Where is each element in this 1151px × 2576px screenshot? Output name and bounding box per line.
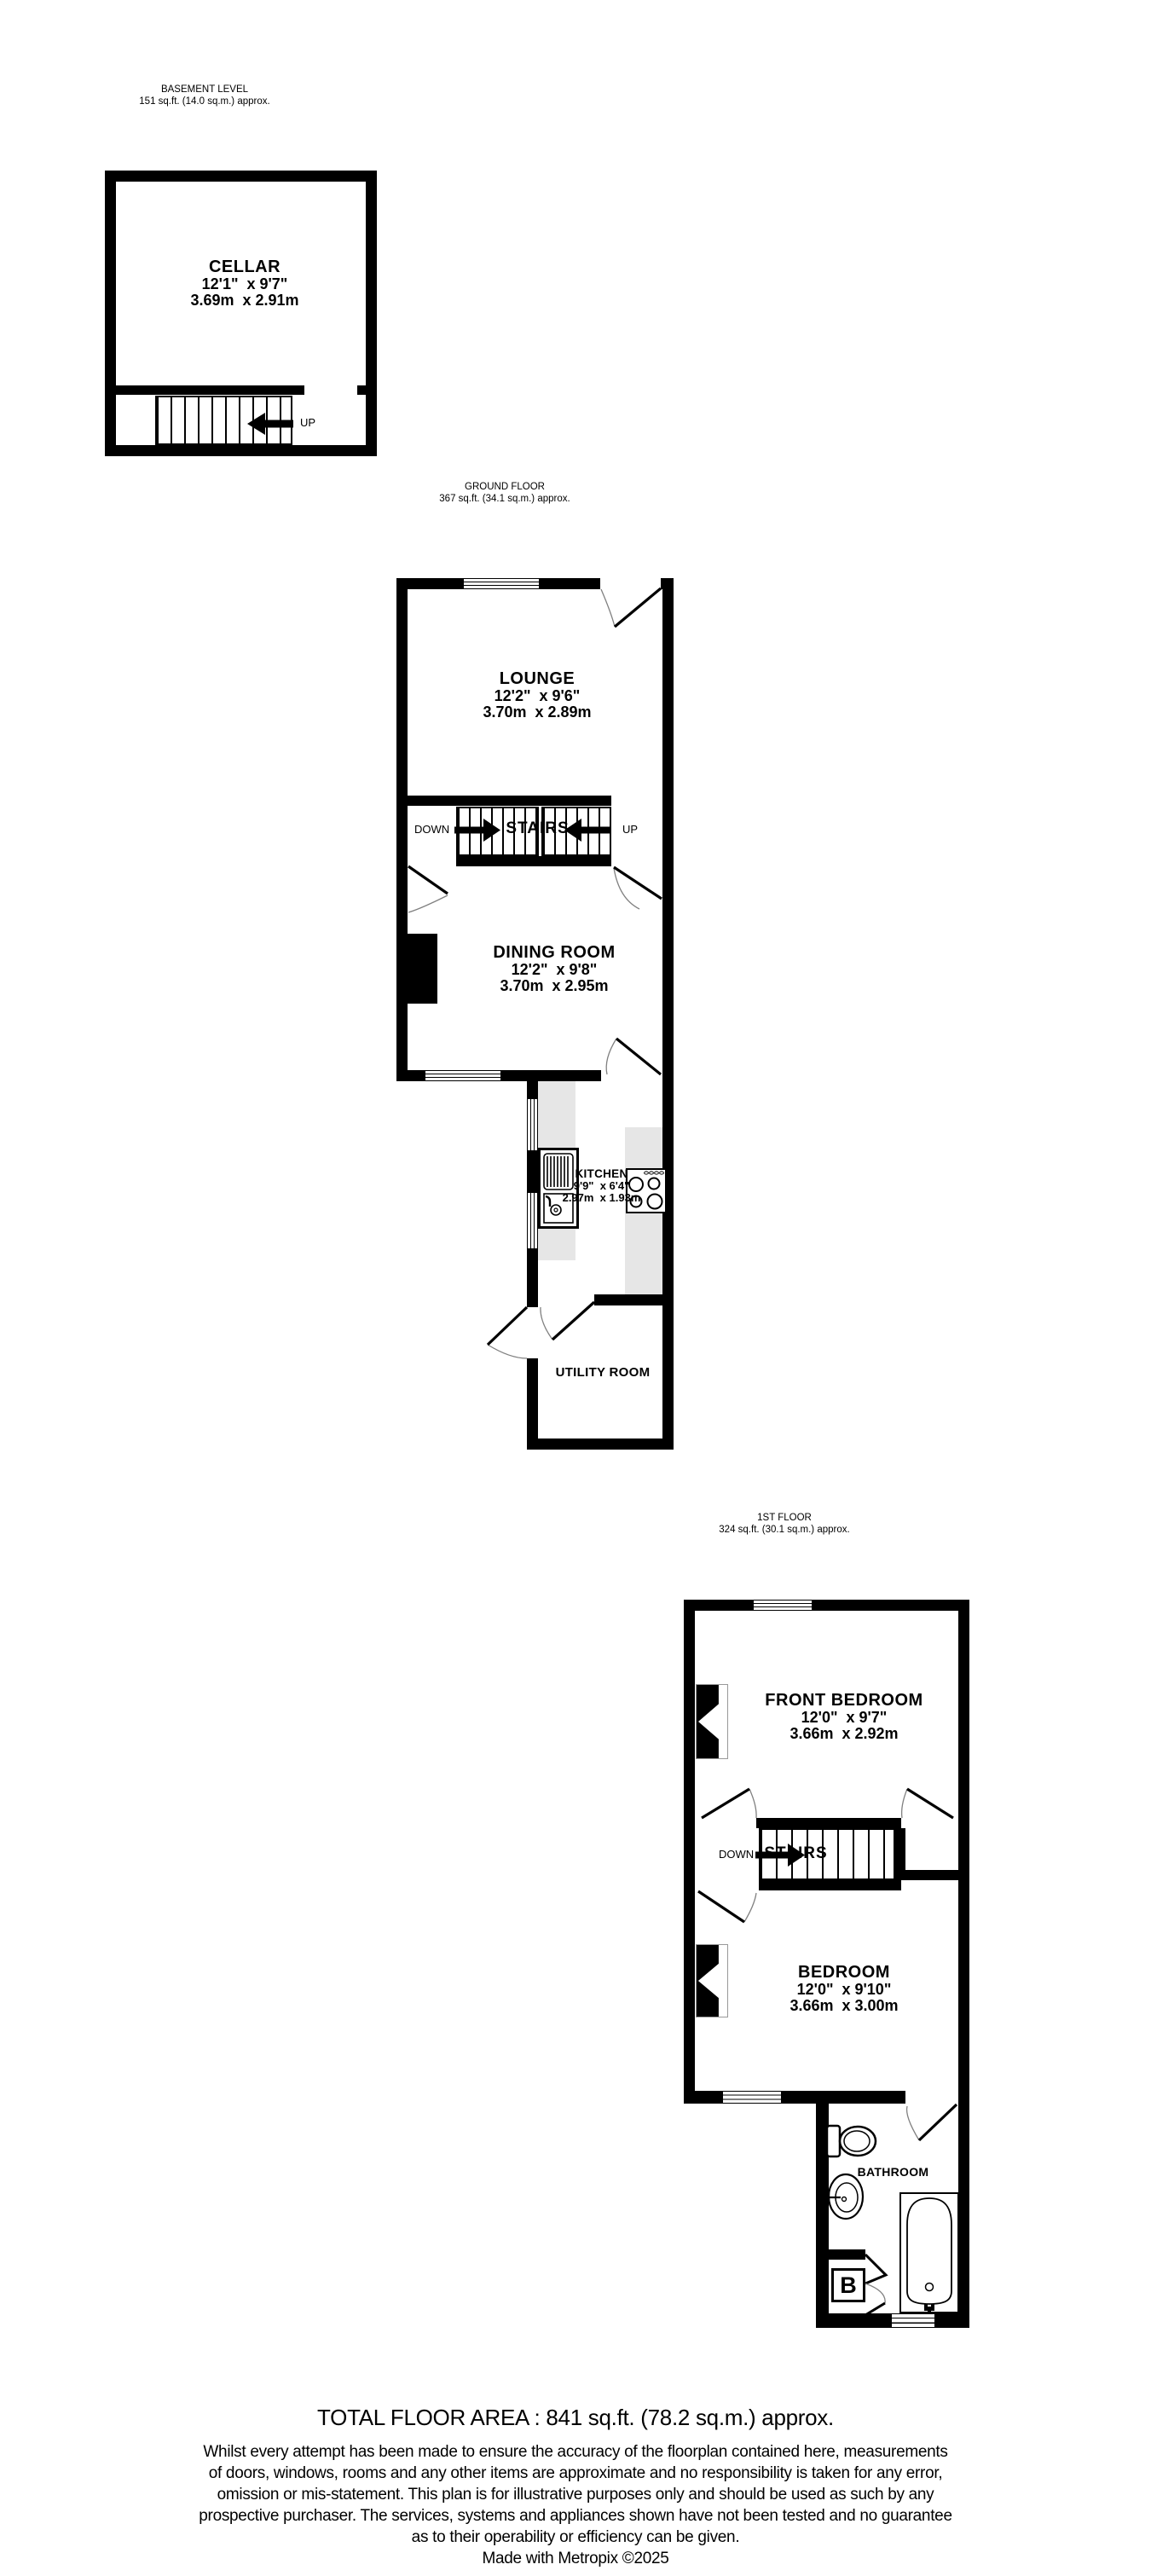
wall bbox=[456, 856, 611, 866]
room-label-front-bedroom: FRONT BEDROOM 12'0" x 9'7" 3.66m x 2.92m bbox=[759, 1692, 929, 1742]
wall bbox=[935, 2313, 969, 2328]
dining-metric: 3.70m x 2.95m bbox=[469, 978, 639, 994]
bathroom-door-swing bbox=[902, 2103, 960, 2144]
disclaimer-line: of doors, windows, rooms and any other i… bbox=[98, 2463, 1053, 2484]
chimney-breast bbox=[696, 1684, 728, 1759]
window bbox=[753, 1600, 813, 1611]
wall bbox=[366, 171, 377, 456]
disclaimer: Whilst every attempt has been made to en… bbox=[98, 2441, 1053, 2569]
room-label-dining: DINING ROOM 12'2" x 9'8" 3.70m x 2.95m bbox=[469, 944, 639, 994]
chimney-breast bbox=[696, 1944, 728, 2017]
floorplan-canvas: BASEMENT LEVEL 151 sq.ft. (14.0 sq.m.) a… bbox=[0, 0, 1151, 2576]
disclaimer-line: omission or mis-statement. This plan is … bbox=[98, 2484, 1053, 2505]
wall bbox=[408, 796, 611, 806]
ground-floor-area: 367 sq.ft. (34.1 sq.m.) approx. bbox=[377, 493, 633, 505]
room-label-kitchen: KITCHEN 9'9" x 6'4" 2.97m x 1.93m bbox=[535, 1167, 668, 1204]
window bbox=[527, 1098, 538, 1151]
room-label-bedroom: BEDROOM 12'0" x 9'10" 3.66m x 3.00m bbox=[759, 1964, 929, 2014]
room-label-bathroom: BATHROOM bbox=[840, 2166, 946, 2179]
exterior-door-swing bbox=[476, 1305, 530, 1362]
wall bbox=[539, 578, 600, 589]
wall bbox=[813, 1600, 969, 1611]
window bbox=[722, 2091, 782, 2104]
bathroom-name: BATHROOM bbox=[840, 2166, 946, 2179]
cellar-name: CELLAR bbox=[159, 258, 330, 276]
wall bbox=[782, 2091, 905, 2104]
ground-floor-title: GROUND FLOOR bbox=[377, 481, 633, 493]
lounge-imperial: 12'2" x 9'6" bbox=[452, 688, 622, 704]
wall bbox=[500, 1070, 601, 1081]
room-label-utility: UTILITY ROOM bbox=[535, 1366, 670, 1379]
basement-level-title: BASEMENT LEVEL bbox=[77, 84, 333, 96]
bifold-door-icon bbox=[863, 2254, 888, 2317]
front-door-swing bbox=[598, 588, 664, 630]
front-bedroom-imperial: 12'0" x 9'7" bbox=[759, 1710, 929, 1726]
dining-imperial: 12'2" x 9'8" bbox=[469, 962, 639, 978]
basement-level-area: 151 sq.ft. (14.0 sq.m.) approx. bbox=[77, 96, 333, 107]
door-swing bbox=[538, 1300, 598, 1344]
window bbox=[891, 2313, 935, 2328]
door-swing bbox=[900, 1784, 960, 1820]
bedroom-metric: 3.66m x 3.00m bbox=[759, 1998, 929, 2014]
stairs-up-label: UP bbox=[622, 824, 638, 836]
wall bbox=[527, 1439, 674, 1450]
door-swing bbox=[695, 1890, 760, 1927]
total-floor-area: TOTAL FLOOR AREA : 841 sq.ft. (78.2 sq.m… bbox=[0, 2405, 1151, 2431]
wall bbox=[527, 1081, 538, 1098]
disclaimer-line: Whilst every attempt has been made to en… bbox=[98, 2441, 1053, 2463]
disclaimer-line: as to their operability or efficiency ca… bbox=[98, 2527, 1053, 2548]
wall bbox=[105, 445, 377, 456]
wall bbox=[116, 385, 304, 395]
wall bbox=[662, 578, 674, 1450]
door-swing bbox=[599, 1035, 664, 1078]
first-floor-title: 1ST FLOOR bbox=[656, 1512, 912, 1524]
bedroom-name: BEDROOM bbox=[759, 1964, 929, 1982]
kitchen-metric: 2.97m x 1.93m bbox=[535, 1192, 668, 1204]
wall bbox=[105, 171, 116, 456]
chimney-breast bbox=[408, 934, 437, 1004]
wall bbox=[357, 385, 366, 395]
kitchen-name: KITCHEN bbox=[535, 1167, 668, 1180]
wall bbox=[816, 2249, 865, 2260]
lounge-name: LOUNGE bbox=[452, 670, 622, 688]
wall bbox=[684, 2091, 722, 2104]
ground-floor-label: GROUND FLOOR 367 sq.ft. (34.1 sq.m.) app… bbox=[377, 481, 633, 505]
stairs-up-label: UP bbox=[300, 417, 315, 429]
lounge-metric: 3.70m x 2.89m bbox=[452, 704, 622, 721]
credit-line: Made with Metropix ©2025 bbox=[98, 2548, 1053, 2569]
toilet-icon bbox=[825, 2121, 878, 2162]
arrow-left-icon bbox=[564, 819, 610, 842]
wall bbox=[684, 1600, 695, 2104]
wall bbox=[594, 1294, 674, 1305]
door-swing bbox=[610, 865, 663, 914]
wall bbox=[396, 578, 408, 1081]
room-label-cellar: CELLAR 12'1" x 9'7" 3.69m x 2.91m bbox=[159, 258, 330, 309]
wall bbox=[759, 1880, 901, 1890]
cellar-imperial: 12'1" x 9'7" bbox=[159, 276, 330, 292]
first-floor-label: 1ST FLOOR 324 sq.ft. (30.1 sq.m.) approx… bbox=[656, 1512, 912, 1536]
disclaimer-line: prospective purchaser. The services, sys… bbox=[98, 2505, 1053, 2527]
cellar-metric: 3.69m x 2.91m bbox=[159, 292, 330, 309]
bedroom-imperial: 12'0" x 9'10" bbox=[759, 1982, 929, 1998]
bathtub-icon bbox=[899, 2192, 959, 2313]
pedestal-sink-icon bbox=[825, 2172, 865, 2221]
arrow-left-icon bbox=[247, 412, 295, 436]
door-swing bbox=[407, 865, 456, 914]
front-bedroom-metric: 3.66m x 2.92m bbox=[759, 1726, 929, 1742]
dining-name: DINING ROOM bbox=[469, 944, 639, 962]
arrow-right-icon bbox=[454, 819, 500, 842]
wall bbox=[756, 1818, 901, 1828]
wall bbox=[527, 1249, 538, 1307]
utility-name: UTILITY ROOM bbox=[535, 1366, 670, 1379]
room-label-lounge: LOUNGE 12'2" x 9'6" 3.70m x 2.89m bbox=[452, 670, 622, 721]
window bbox=[425, 1070, 501, 1081]
wall bbox=[396, 1070, 425, 1081]
kitchen-imperial: 9'9" x 6'4" bbox=[535, 1180, 668, 1192]
boiler-box: B bbox=[831, 2268, 865, 2302]
stairs-down-label: DOWN bbox=[414, 824, 449, 836]
first-floor-area: 324 sq.ft. (30.1 sq.m.) approx. bbox=[656, 1524, 912, 1536]
wall bbox=[958, 1600, 969, 2328]
stairs-down-label: DOWN bbox=[719, 1849, 754, 1861]
wall bbox=[901, 1870, 961, 1880]
door-swing bbox=[695, 1784, 760, 1820]
window bbox=[463, 578, 540, 589]
basement-level-label: BASEMENT LEVEL 151 sq.ft. (14.0 sq.m.) a… bbox=[77, 84, 333, 107]
wall bbox=[105, 171, 377, 182]
arrow-right-icon bbox=[755, 1844, 805, 1867]
front-bedroom-name: FRONT BEDROOM bbox=[759, 1692, 929, 1710]
